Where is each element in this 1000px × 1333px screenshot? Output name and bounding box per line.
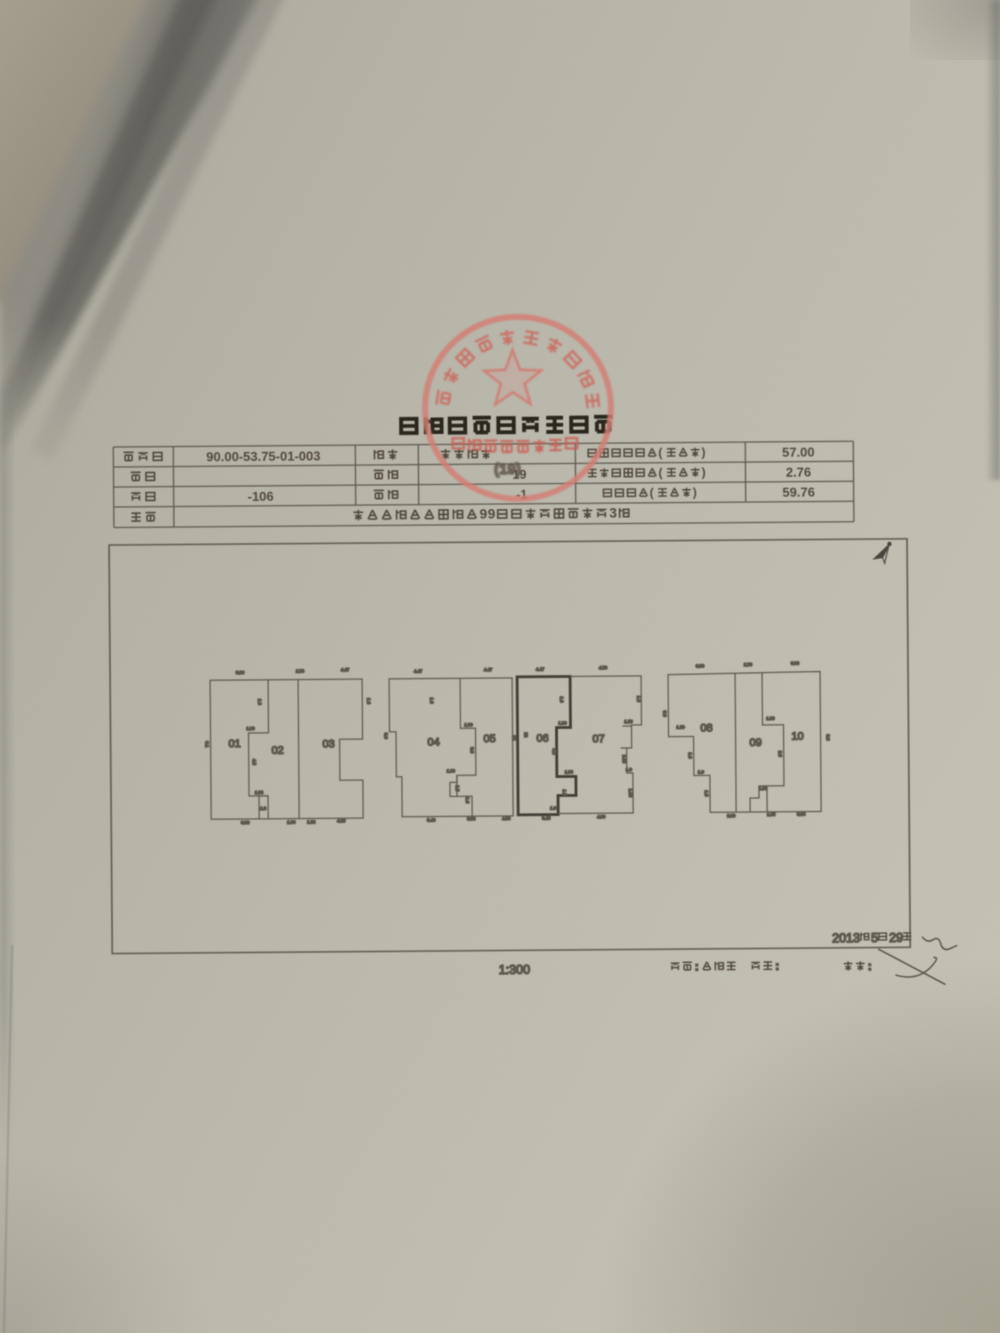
- svg-text::: :: [868, 959, 872, 973]
- svg-text:3.46: 3.46: [542, 816, 551, 821]
- svg-text:(19): (19): [494, 461, 521, 478]
- svg-text:(: (: [658, 466, 663, 480]
- svg-text:3.96: 3.96: [797, 812, 806, 817]
- svg-text:2.90: 2.90: [727, 813, 736, 818]
- svg-text:1.8: 1.8: [559, 697, 564, 704]
- svg-text:3.96: 3.96: [236, 670, 245, 675]
- svg-text:57.00: 57.00: [782, 445, 815, 460]
- svg-text:4.5: 4.5: [252, 759, 257, 766]
- svg-text:1.90: 1.90: [565, 769, 574, 774]
- svg-text:2.8: 2.8: [778, 751, 783, 758]
- svg-text:1.5: 1.5: [455, 785, 460, 792]
- svg-text:05: 05: [483, 733, 495, 745]
- svg-text:3.96: 3.96: [241, 820, 250, 825]
- svg-text:2.70: 2.70: [744, 662, 753, 667]
- svg-text:1.8: 1.8: [257, 699, 262, 706]
- svg-text:1.0: 1.0: [260, 806, 267, 811]
- svg-text:08: 08: [700, 722, 712, 734]
- svg-text:): ): [702, 465, 706, 479]
- svg-text:(: (: [650, 486, 655, 500]
- svg-text:): ): [693, 485, 697, 499]
- svg-text:1.0: 1.0: [550, 806, 557, 811]
- svg-text:(: (: [658, 446, 663, 460]
- svg-text::: :: [775, 959, 779, 973]
- svg-text:4.90: 4.90: [597, 814, 606, 819]
- svg-text:2.70: 2.70: [296, 669, 305, 674]
- svg-text:0.96: 0.96: [467, 816, 476, 821]
- svg-text:1.0: 1.0: [465, 797, 470, 804]
- svg-text:07: 07: [592, 733, 604, 745]
- svg-text:1.06: 1.06: [287, 820, 296, 825]
- svg-text:4.47: 4.47: [414, 669, 423, 674]
- svg-text:90.00-53.75-01-003: 90.00-53.75-01-003: [206, 448, 320, 464]
- svg-text:3.9: 3.9: [826, 734, 831, 741]
- svg-text:29: 29: [889, 931, 903, 945]
- svg-text:1.5: 1.5: [562, 789, 567, 796]
- svg-text:1.96: 1.96: [255, 790, 264, 795]
- svg-text:1.90: 1.90: [464, 722, 473, 727]
- svg-text:4.16: 4.16: [337, 818, 346, 823]
- svg-text:1.9: 1.9: [688, 752, 693, 759]
- svg-text:): ): [701, 445, 705, 459]
- svg-text:5.46: 5.46: [427, 818, 436, 823]
- svg-text:1.5: 1.5: [704, 790, 709, 797]
- svg-text:2.76: 2.76: [786, 465, 811, 480]
- svg-text:4.5: 4.5: [552, 749, 557, 756]
- svg-text:02: 02: [271, 745, 283, 757]
- svg-text:4.90: 4.90: [502, 816, 511, 821]
- svg-text:06: 06: [536, 733, 548, 745]
- svg-text:1.0: 1.0: [626, 767, 633, 772]
- svg-text:1.10: 1.10: [624, 719, 633, 724]
- svg-text:9: 9: [480, 507, 488, 522]
- svg-text:1.8: 1.8: [366, 698, 371, 705]
- svg-text:1.90: 1.90: [246, 726, 255, 731]
- svg-text:4.47: 4.47: [341, 667, 350, 672]
- svg-text:3.0: 3.0: [662, 711, 667, 718]
- svg-text:1.98: 1.98: [767, 812, 776, 817]
- svg-text:3.0: 3.0: [470, 747, 475, 754]
- svg-text:3.0: 3.0: [384, 733, 389, 740]
- svg-text:10: 10: [791, 731, 803, 743]
- svg-text:01: 01: [228, 738, 240, 750]
- svg-text:04: 04: [427, 736, 439, 748]
- svg-text:1.8: 1.8: [429, 698, 434, 705]
- svg-text:59.76: 59.76: [782, 485, 815, 500]
- svg-text:2.10: 2.10: [622, 755, 627, 764]
- svg-text:3.1: 3.1: [205, 741, 210, 748]
- svg-text:1.98: 1.98: [628, 789, 633, 798]
- svg-text::: :: [695, 959, 699, 973]
- svg-text:1.90: 1.90: [766, 716, 775, 721]
- svg-text:2013: 2013: [832, 931, 860, 945]
- svg-text:1:300: 1:300: [499, 963, 530, 977]
- svg-text:5: 5: [871, 931, 878, 945]
- svg-text:22: 22: [524, 732, 529, 737]
- svg-text:4.47: 4.47: [484, 667, 493, 672]
- svg-text:-106: -106: [248, 489, 274, 504]
- svg-text:3: 3: [609, 506, 617, 521]
- svg-text:1.8: 1.8: [636, 696, 641, 703]
- svg-text:1.10: 1.10: [676, 725, 685, 730]
- svg-text:1.90: 1.90: [759, 786, 768, 791]
- svg-text:4.47: 4.47: [536, 667, 545, 672]
- svg-text:03: 03: [322, 738, 334, 750]
- svg-text:1.98: 1.98: [307, 819, 316, 824]
- svg-text:4.70: 4.70: [599, 665, 608, 670]
- svg-text:3.90: 3.90: [696, 663, 705, 668]
- svg-text:09: 09: [749, 737, 761, 749]
- svg-text:1.0: 1.0: [698, 769, 705, 774]
- svg-text:3.96: 3.96: [791, 661, 800, 666]
- svg-text:9: 9: [488, 507, 496, 522]
- svg-text:1.86: 1.86: [558, 720, 567, 725]
- svg-text:33: 33: [512, 735, 517, 740]
- svg-text:1.90: 1.90: [447, 768, 456, 773]
